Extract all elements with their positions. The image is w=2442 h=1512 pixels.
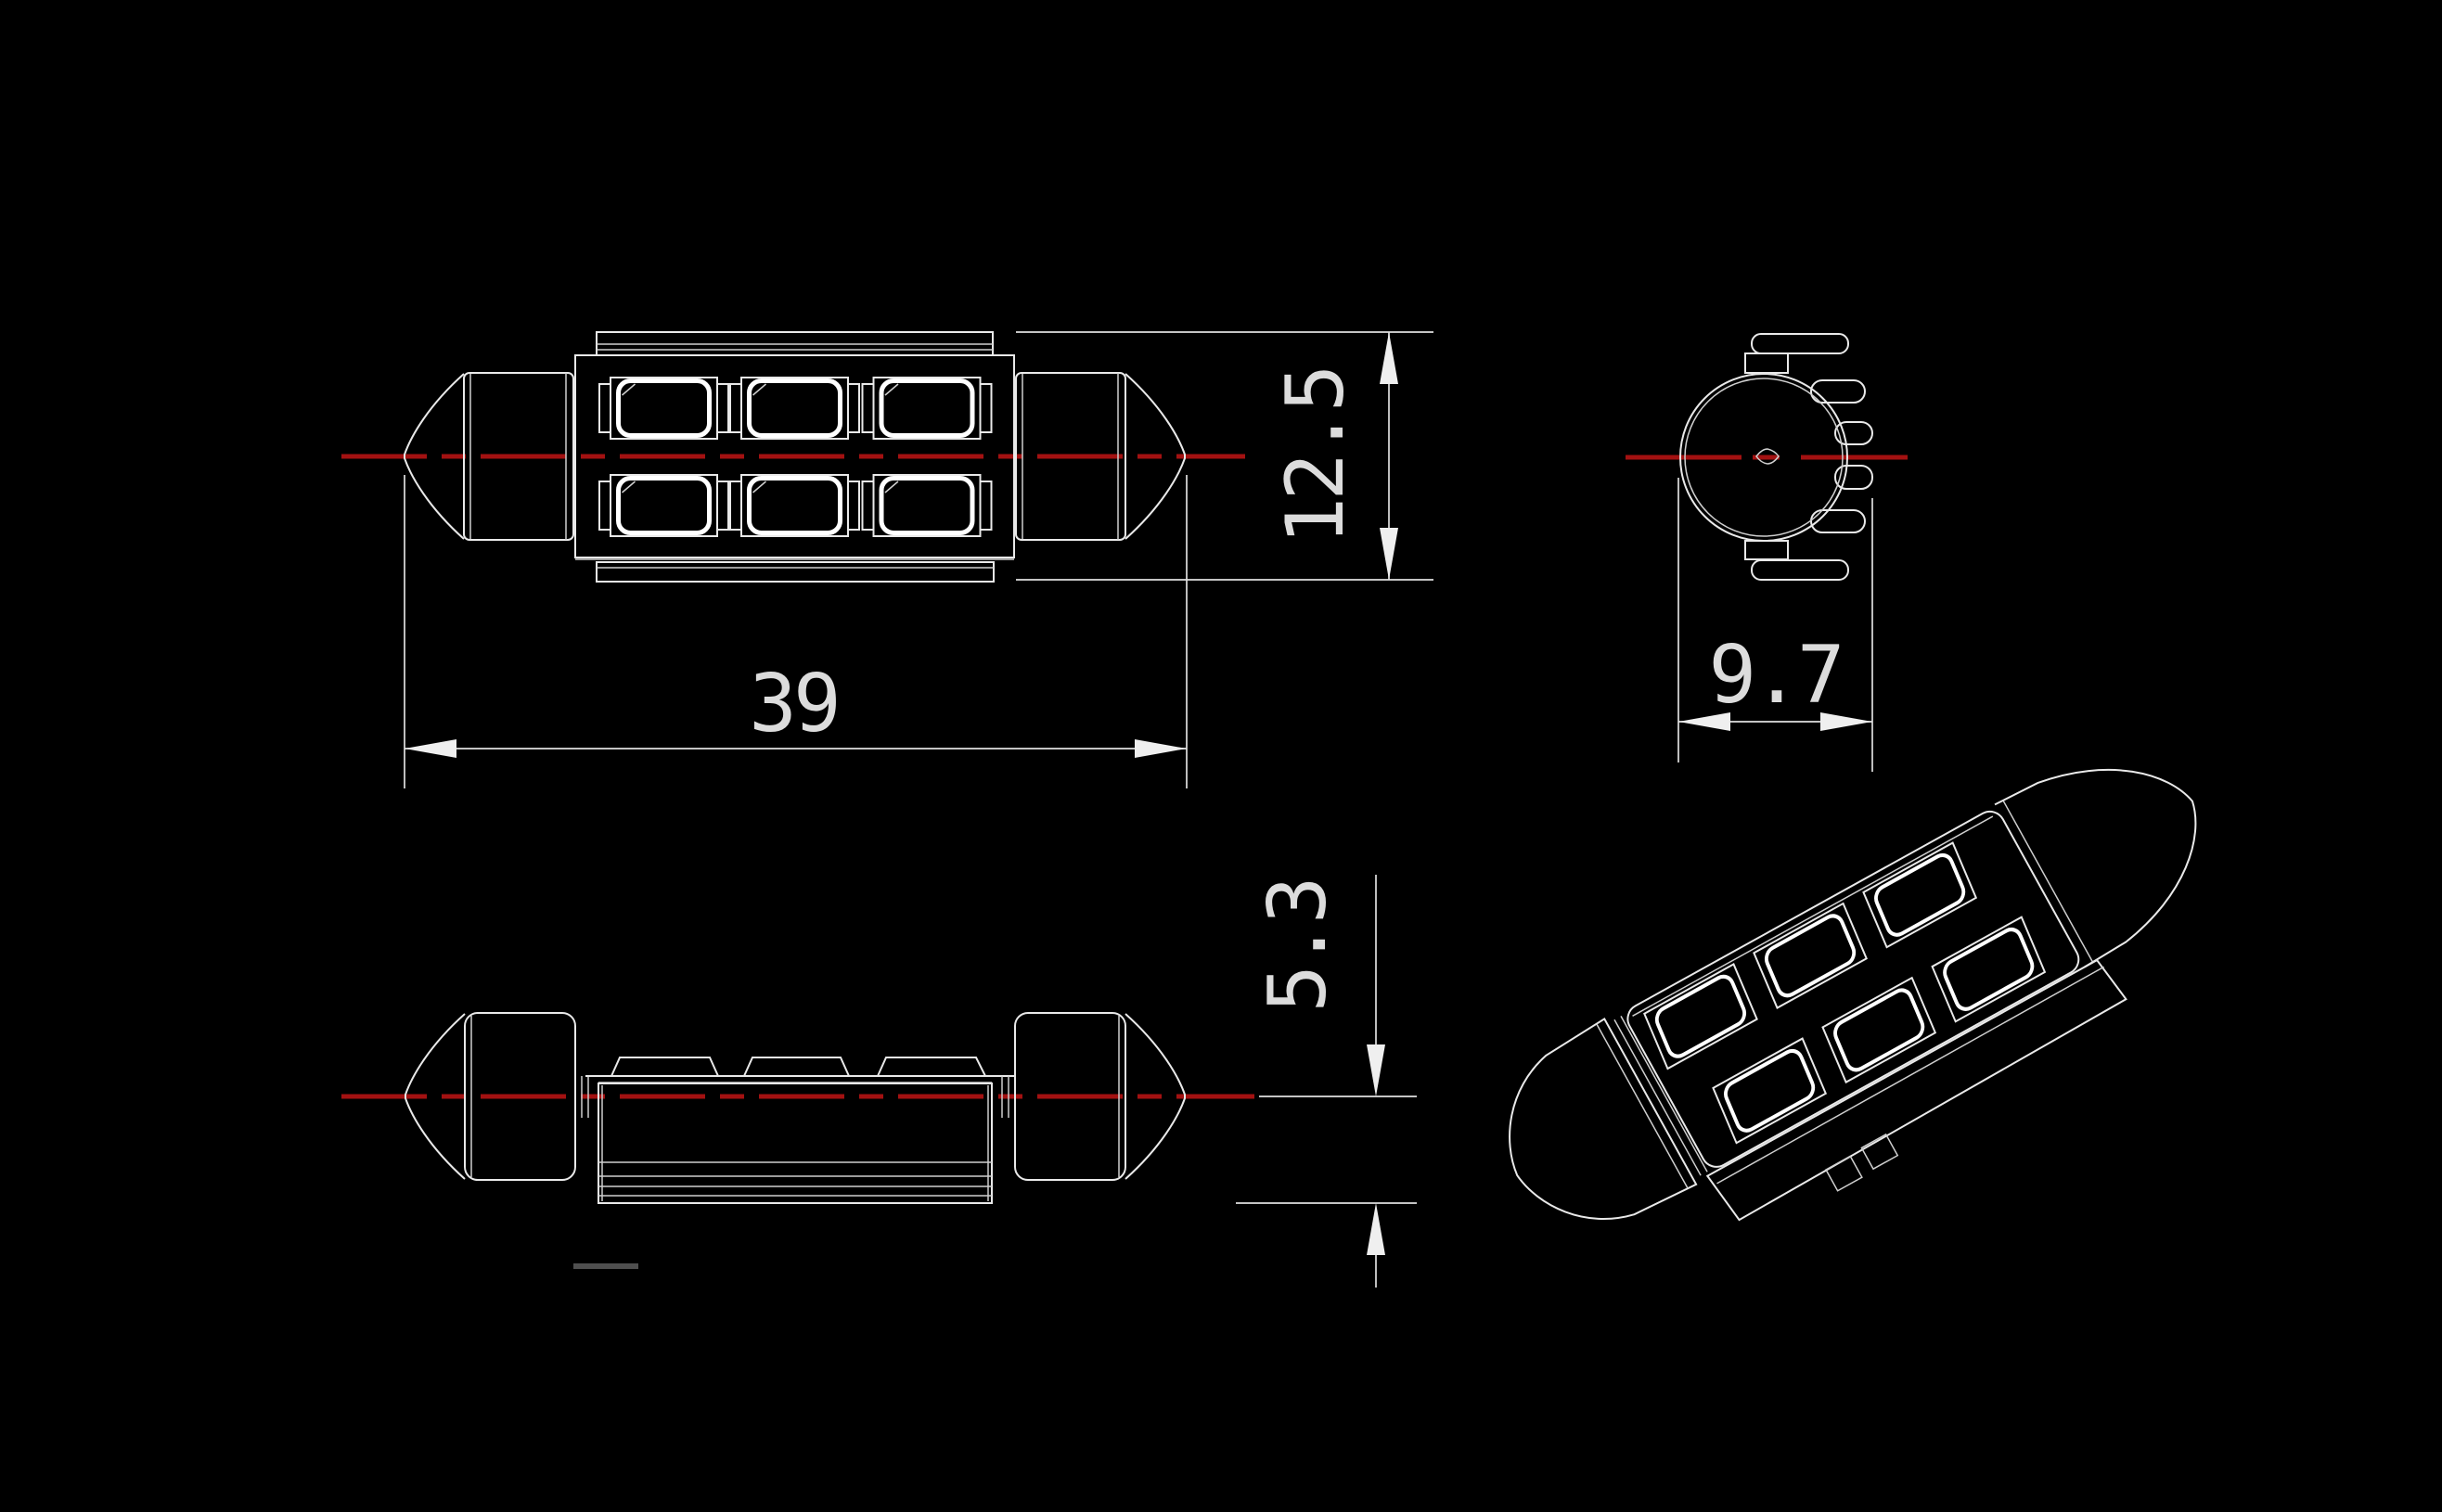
arrowhead-down bbox=[1380, 528, 1398, 580]
led-chip bbox=[1713, 1039, 1825, 1144]
led-chip bbox=[1644, 964, 1756, 1069]
led-chip bbox=[863, 378, 992, 439]
dim-heatsink-depth: 5.3 bbox=[1236, 875, 1417, 1288]
arrowhead-up bbox=[1367, 1203, 1385, 1255]
led-chip bbox=[730, 475, 859, 536]
side-view bbox=[405, 1013, 1185, 1266]
led-chip bbox=[599, 475, 728, 536]
led-chip bbox=[1933, 917, 2045, 1022]
arrowhead-left bbox=[405, 739, 456, 758]
led-chip bbox=[1863, 843, 1975, 948]
led-chip bbox=[599, 378, 728, 439]
dim-end-width: 9.7 bbox=[1678, 478, 1872, 772]
dim-overall-length-label: 39 bbox=[749, 658, 838, 750]
arrowhead-right bbox=[1135, 739, 1187, 758]
led-chip bbox=[1822, 978, 1934, 1083]
isometric-view bbox=[1472, 719, 2274, 1324]
led-chip bbox=[863, 475, 992, 536]
cad-canvas: 39 12.5 9.7 5.3 bbox=[0, 0, 2442, 1512]
drawing-svg: 39 12.5 9.7 5.3 bbox=[0, 0, 2442, 1512]
dim-end-width-label: 9.7 bbox=[1708, 629, 1841, 722]
arrowhead-up bbox=[1380, 332, 1398, 384]
dim-body-height-label: 12.5 bbox=[1269, 367, 1362, 545]
dim-overall-length: 39 bbox=[405, 475, 1187, 788]
led-chip bbox=[1754, 903, 1866, 1008]
dim-heatsink-depth-label: 5.3 bbox=[1252, 879, 1344, 1012]
centerlines bbox=[341, 456, 1908, 1096]
arrowhead-down bbox=[1367, 1044, 1385, 1096]
led-chip bbox=[730, 378, 859, 439]
